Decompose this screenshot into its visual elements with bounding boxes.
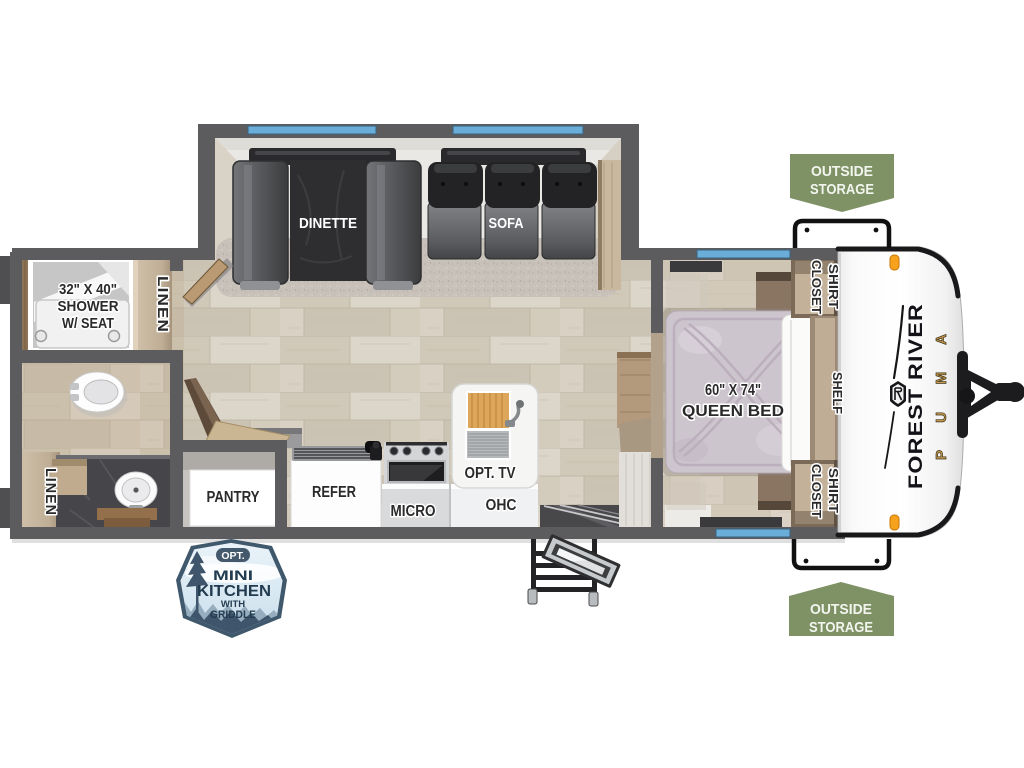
svg-text:DINETTE: DINETTE bbox=[299, 215, 357, 232]
svg-text:FOREST RIVER: FOREST RIVER bbox=[906, 303, 927, 489]
svg-text:SOFA: SOFA bbox=[489, 215, 524, 232]
svg-text:STORAGE: STORAGE bbox=[809, 619, 873, 636]
svg-text:OHC: OHC bbox=[486, 497, 517, 514]
svg-text:KITCHEN: KITCHEN bbox=[197, 583, 271, 600]
svg-text:OPT. TV: OPT. TV bbox=[465, 465, 516, 482]
svg-text:SHELF: SHELF bbox=[830, 372, 845, 414]
svg-text:MINI: MINI bbox=[213, 567, 253, 583]
svg-text:GRIDDLE: GRIDDLE bbox=[210, 609, 256, 621]
svg-text:MICRO: MICRO bbox=[391, 503, 436, 520]
svg-text:LINEN: LINEN bbox=[42, 468, 59, 516]
svg-text:CLOSET: CLOSET bbox=[809, 260, 824, 314]
svg-text:LINEN: LINEN bbox=[154, 276, 171, 333]
svg-text:OUTSIDE: OUTSIDE bbox=[811, 163, 873, 180]
svg-text:SHOWER: SHOWER bbox=[58, 298, 119, 315]
svg-text:PANTRY: PANTRY bbox=[207, 489, 260, 506]
svg-text:60" X 74": 60" X 74" bbox=[705, 382, 761, 399]
svg-text:STORAGE: STORAGE bbox=[810, 181, 874, 198]
svg-text:OUTSIDE: OUTSIDE bbox=[810, 601, 872, 618]
svg-text:W/ SEAT: W/ SEAT bbox=[62, 315, 114, 332]
svg-text:REFER: REFER bbox=[312, 484, 356, 501]
svg-text:CLOSET: CLOSET bbox=[809, 464, 824, 518]
svg-text:OPT.: OPT. bbox=[221, 550, 244, 562]
svg-text:QUEEN BED: QUEEN BED bbox=[682, 403, 784, 420]
svg-text:SHIRT: SHIRT bbox=[826, 264, 841, 309]
svg-text:SHIRT: SHIRT bbox=[826, 468, 841, 513]
svg-text:32" X 40": 32" X 40" bbox=[59, 281, 117, 298]
